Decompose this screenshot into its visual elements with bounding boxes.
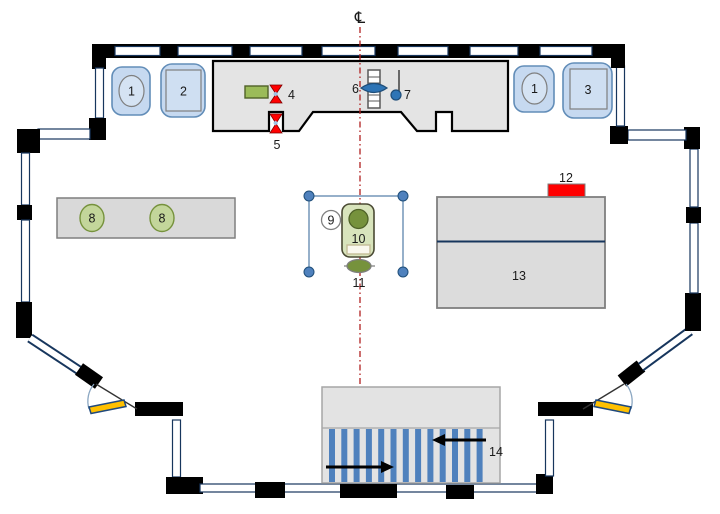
window-segment [250, 47, 302, 56]
window-segment [96, 68, 104, 118]
corner-dot [304, 191, 314, 201]
entry-area: 14 [322, 387, 503, 483]
left-table: 8 8 [57, 198, 235, 238]
wall-pier [622, 366, 641, 381]
window-segment [690, 149, 698, 207]
wall-pier [536, 474, 553, 494]
callout-6: 6 [352, 82, 359, 96]
right-cabinet: 12 13 [437, 171, 605, 308]
item11-oval [347, 260, 371, 273]
window-segment [690, 223, 698, 293]
door-left [88, 384, 137, 414]
wall-pier [16, 302, 32, 338]
window-segment [546, 420, 554, 476]
wall-pier [166, 477, 203, 494]
corner-dot [398, 191, 408, 201]
corner-dot [304, 267, 314, 277]
callout-11: 11 [353, 276, 366, 290]
callout-9: 9 [328, 214, 335, 228]
window-segment [628, 130, 686, 140]
window-segment [322, 47, 375, 56]
centerline-symbol: ℄ [354, 8, 366, 27]
window-segment [115, 47, 160, 56]
callout-1-right: 1 [531, 82, 538, 96]
callout-1-left: 1 [128, 85, 135, 99]
wall-pier [611, 44, 625, 68]
window-segment [617, 66, 625, 126]
floor-plan-svg: ℄ 4 5 6 7 1 2 1 3 [0, 0, 720, 514]
wall-pier [17, 129, 40, 153]
door-swing-arc [88, 384, 94, 409]
window-segment [178, 47, 232, 56]
callout-12: 12 [559, 171, 573, 185]
callout-14: 14 [489, 445, 503, 459]
door-leaf [594, 400, 631, 414]
callout-3: 3 [585, 83, 592, 97]
wall-pier [446, 485, 474, 499]
callout-10: 10 [352, 232, 366, 246]
window-segment [22, 220, 30, 302]
item7-mic-icon [391, 90, 401, 100]
wall-pier [255, 482, 285, 498]
wall-pier [92, 44, 106, 69]
callout-5: 5 [274, 138, 281, 152]
item13-cabinet [437, 197, 605, 308]
item12-red-block [548, 184, 585, 197]
item4-green-block [245, 86, 268, 98]
callout-7: 7 [404, 88, 411, 102]
callout-8a: 8 [89, 212, 96, 226]
floor-plan-canvas: ℄ 4 5 6 7 1 2 1 3 [0, 0, 720, 514]
item10-slot [347, 245, 370, 254]
callout-8b: 8 [159, 212, 166, 226]
window-glass [30, 338, 80, 371]
callout-13: 13 [512, 269, 526, 283]
window-segment [22, 153, 30, 205]
item10-knob [349, 210, 368, 229]
wall-pier [686, 207, 701, 223]
wall-pier [610, 126, 628, 144]
wall-pier [340, 484, 397, 498]
door-swing-arc [626, 384, 632, 409]
wall-pier [685, 293, 701, 331]
center-assembly: 9 10 11 [304, 191, 408, 290]
corner-dot [398, 267, 408, 277]
wall-segment [135, 402, 183, 416]
window-segment [540, 47, 592, 56]
wall-pier [17, 205, 32, 220]
wall-pier [89, 118, 106, 140]
window-segment [470, 47, 518, 56]
window-segment [398, 47, 448, 56]
window-segment [173, 420, 181, 477]
wall-segment [538, 402, 593, 416]
entry-platform [322, 387, 500, 483]
door-leaf [89, 400, 126, 414]
window-glass [641, 331, 690, 367]
callout-4: 4 [288, 88, 295, 102]
window-segment [38, 129, 90, 139]
callout-2: 2 [180, 85, 187, 99]
wall-pier [79, 369, 99, 383]
